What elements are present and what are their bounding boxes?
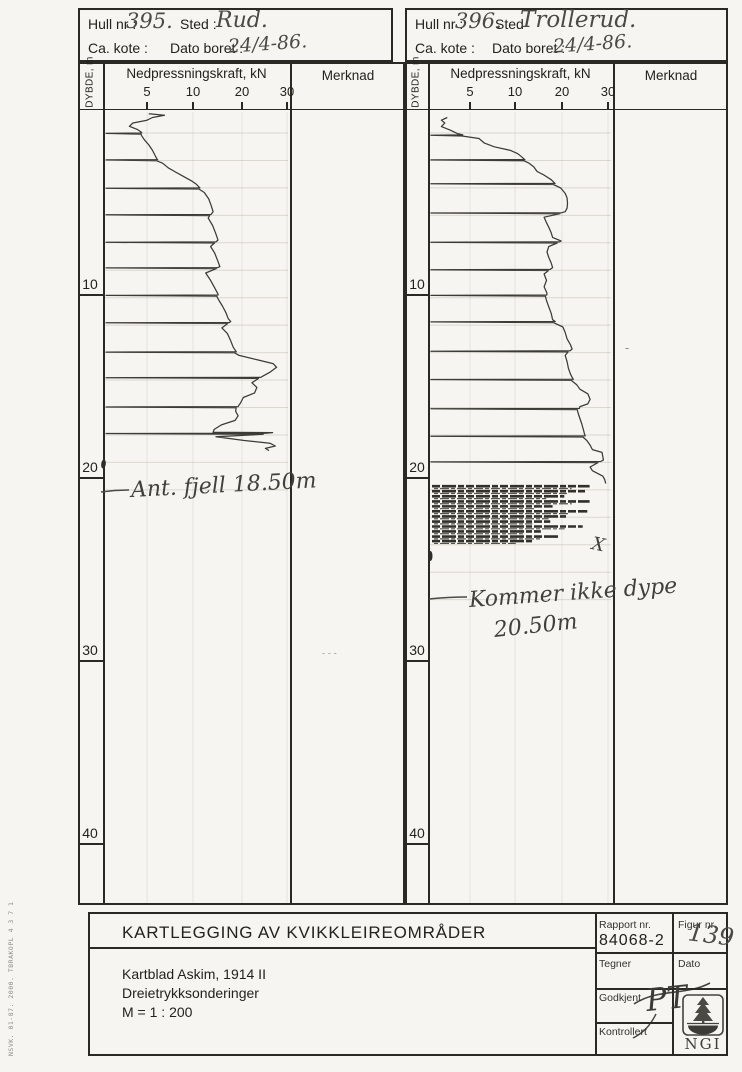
scanned-sounding-log-sheet: NSVK. 01-87. 2000. TBRAKOPL 4 3 7 1 Hull… (0, 0, 742, 1072)
depth-tick-label: 40 (406, 825, 428, 841)
chart-396-table-frame (405, 62, 728, 905)
print-code-margin-note: NSVK. 01-87. 2000. TBRAKOPL 4 3 7 1 (8, 826, 15, 1056)
handwritten-note: - - - (322, 649, 337, 659)
force-tick-label: 20 (230, 84, 254, 99)
force-tick-mark (146, 102, 148, 109)
chart-395-dybde-axis-label: DYBDE, m (84, 66, 96, 108)
depth-tick-line (407, 477, 428, 479)
chart-396-depth-column-border (428, 62, 430, 905)
depth-tick-label: 20 (79, 459, 101, 475)
force-tick-label: 30 (275, 84, 299, 99)
chart-395-depth-column-border (103, 62, 105, 905)
title-block-line-method: Dreietrykksonderinger (122, 985, 259, 1001)
depth-tick-label: 40 (79, 825, 101, 841)
dato-label: Dato (678, 958, 700, 970)
depth-tick-line (407, 843, 428, 845)
title-underline (90, 947, 595, 949)
force-tick-mark (514, 102, 516, 109)
chart-396-dybde-axis-label: DYBDE, m (410, 66, 422, 108)
borehole-396-header-box: Hull nr : 396. Sted Trollerud. Ca. kote … (405, 8, 728, 62)
kote-label: Ca. kote : (88, 40, 148, 56)
chart-396-header-row-border (405, 109, 728, 111)
figur-nr-value: 139 (686, 919, 735, 952)
title-block: KARTLEGGING AV KVIKKLEIREOMRÅDER Kartbla… (88, 912, 728, 1056)
force-tick-mark (561, 102, 563, 109)
force-tick-label: 20 (550, 84, 574, 99)
chart-395-merknad-label: Merknad (291, 68, 405, 84)
title-block-line-kartblad: Kartblad Askim, 1914 II (122, 966, 266, 982)
chart-396-merknad-label: Merknad (614, 68, 728, 84)
chart-396-merknad-divider (613, 62, 615, 905)
force-tick-mark (607, 102, 609, 109)
hull-nr-value: 395. (126, 9, 173, 33)
godkjent-label: Godkjent (599, 992, 641, 1004)
depth-tick-line (80, 843, 103, 845)
depth-tick-line (80, 294, 103, 296)
force-tick-mark (241, 102, 243, 109)
sted-value: Trollerud. (520, 7, 636, 33)
depth-tick-line (80, 660, 103, 662)
depth-tick-line (407, 294, 428, 296)
rapport-nr-value: 84068-2 (599, 932, 665, 950)
kontrollert-label: Kontrollert (599, 1026, 647, 1038)
depth-tick-line (407, 660, 428, 662)
depth-tick-label: 30 (406, 642, 428, 658)
depth-tick-line (80, 477, 103, 479)
title-block-line-scale: M = 1 : 200 (122, 1004, 192, 1020)
borehole-395-header-box: Hull nr : 395. Sted : Rud. Ca. kote : Da… (78, 8, 393, 62)
sted-label: Sted : (180, 16, 217, 32)
rapport-nr-label: Rapport nr. (599, 919, 651, 931)
force-tick-label: 10 (503, 84, 527, 99)
depth-tick-label: 30 (79, 642, 101, 658)
rapport-row-border (595, 952, 726, 954)
force-tick-label: 30 (596, 84, 620, 99)
force-tick-mark (286, 102, 288, 109)
kote-label: Ca. kote : (415, 40, 475, 56)
depth-tick-label: 20 (406, 459, 428, 475)
force-tick-mark (192, 102, 194, 109)
chart-395-force-axis-label: Nedpressningskraft, kN (103, 66, 290, 82)
force-tick-label: 5 (458, 84, 482, 99)
force-tick-mark (469, 102, 471, 109)
depth-tick-label: 10 (79, 276, 101, 292)
title-block-right-column-divider (595, 914, 597, 1054)
dato-boret-value: 24/4-86. (552, 31, 633, 58)
ngi-logo-text: NGI (679, 1036, 727, 1053)
tegner-label: Tegner (599, 958, 631, 970)
dato-boret-value: 24/4-86. (227, 31, 308, 58)
handwritten-note: - (625, 341, 629, 355)
report-title: KARTLEGGING AV KVIKKLEIREOMRÅDER (122, 923, 486, 943)
chart-396-force-axis-label: Nedpressningskraft, kN (428, 66, 613, 82)
force-tick-label: 5 (135, 84, 159, 99)
godkjent-signature: PT (644, 980, 689, 1020)
force-tick-label: 10 (181, 84, 205, 99)
sted-value: Rud. (216, 8, 268, 33)
depth-tick-label: 10 (406, 276, 428, 292)
godkjent-row-border (595, 1022, 672, 1024)
